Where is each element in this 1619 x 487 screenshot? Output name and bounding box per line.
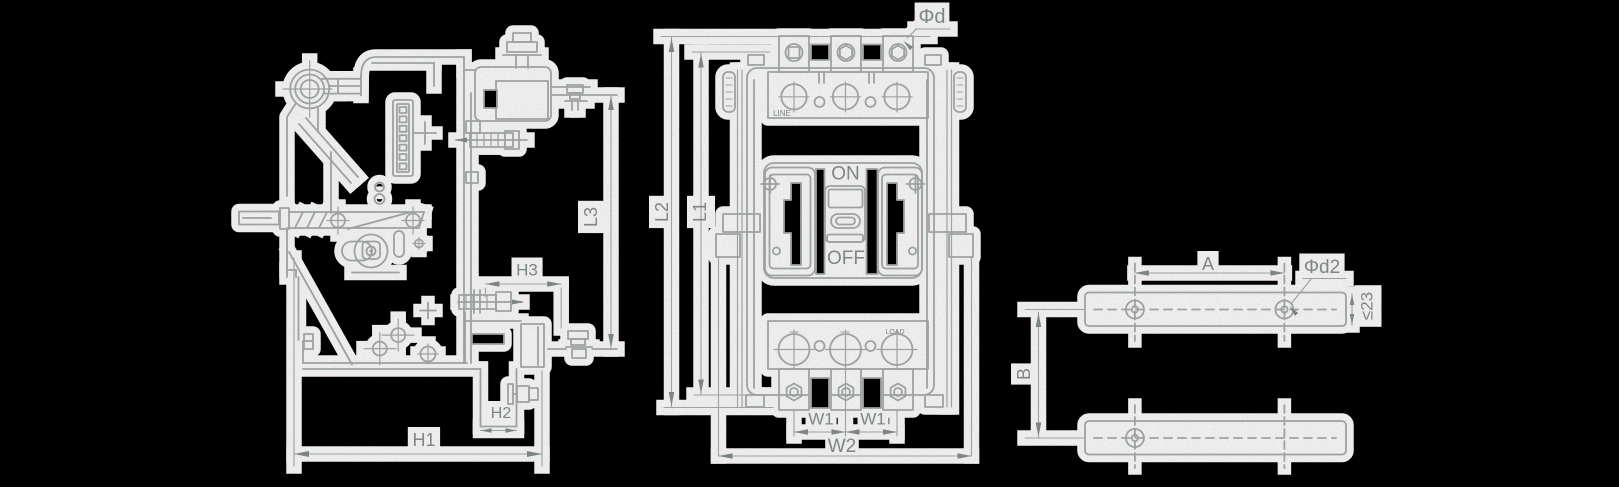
svg-text:H2: H2	[491, 405, 512, 422]
svg-text:OFF: OFF	[827, 248, 865, 269]
svg-text:W1: W1	[860, 409, 886, 428]
svg-text:A: A	[1202, 254, 1214, 274]
svg-text:L2: L2	[652, 202, 672, 222]
svg-text:B: B	[1014, 368, 1034, 380]
svg-text:W1: W1	[808, 409, 834, 428]
svg-text:LINE: LINE	[773, 109, 791, 118]
svg-text:ON: ON	[831, 164, 860, 185]
svg-text:Φd: Φd	[918, 6, 945, 28]
svg-text:≤23: ≤23	[1357, 292, 1376, 320]
svg-text:L1: L1	[690, 202, 710, 222]
svg-text:Φd2: Φd2	[1304, 257, 1340, 278]
svg-text:LOAD: LOAD	[885, 329, 904, 336]
svg-text:H1: H1	[412, 430, 435, 450]
svg-text:L3: L3	[581, 207, 601, 227]
svg-text:H3: H3	[516, 260, 538, 279]
svg-text:W2: W2	[828, 436, 857, 457]
